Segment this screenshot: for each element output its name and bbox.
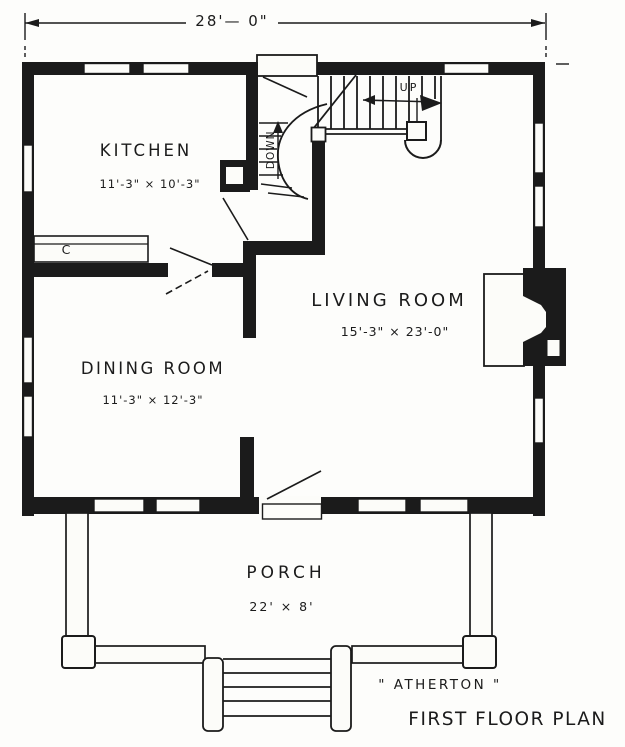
window-right-living-2: [535, 186, 544, 227]
porch: [62, 513, 496, 731]
kitchen-dining-door-swing-dashed: [166, 271, 208, 294]
window-left-dining-2: [24, 396, 33, 437]
living-room-label: LIVING ROOM: [299, 291, 479, 311]
fireplace-flue: [548, 340, 560, 356]
entry-vestibule: [257, 55, 317, 76]
window-bottom-dining-2: [156, 499, 200, 512]
up-arrowhead-small: [363, 95, 375, 105]
front-door-sill: [263, 504, 322, 519]
wall-divider-upper: [243, 241, 256, 338]
porch-side-right: [470, 513, 492, 640]
window-bottom-living-2: [420, 499, 468, 512]
plan-title: FIRST FLOOR PLAN: [390, 710, 625, 730]
newel-volute: [405, 140, 441, 158]
wall-stair-hall-bottom: [256, 241, 325, 255]
dining-room-label: DINING ROOM: [63, 360, 243, 378]
up-label: UP: [394, 82, 424, 94]
counter-label: C: [55, 243, 77, 257]
hall-kitchen-door-swing: [223, 198, 248, 240]
porch-post-left: [62, 636, 95, 668]
basement-newel-post: [312, 128, 326, 142]
front-door-swing: [267, 471, 321, 499]
kitchen-label: KITCHEN: [61, 142, 231, 160]
up-arrowhead-large: [420, 95, 442, 111]
window-top-kitchen-2: [143, 64, 189, 74]
interior-walls: [33, 62, 325, 497]
porch-label: PORCH: [196, 564, 376, 583]
wall-divider-lower: [240, 437, 254, 497]
floor-plan-drawing: 28'— 0" KITCHEN 11'-3" × 10'-3" LIVING R…: [0, 0, 625, 747]
newel-post: [407, 122, 426, 140]
wall-left: [22, 62, 34, 516]
fireplace: [484, 268, 566, 366]
porch-post-right: [463, 636, 496, 668]
fireplace-hearth: [484, 274, 524, 366]
dimension-arrowhead-right: [531, 19, 545, 27]
windows: [24, 64, 544, 513]
porch-side-left: [66, 513, 88, 640]
exterior-walls: [22, 62, 545, 516]
window-left-kitchen: [24, 145, 33, 192]
porch-rail-right: [352, 646, 463, 663]
house-name-title: " ATHERTON ": [350, 678, 530, 693]
dimension-arrowhead-left: [25, 19, 39, 27]
dining-room-dims-label: 11'-3" × 12'-3": [63, 394, 243, 407]
stair-break-line: [313, 75, 356, 129]
window-right-living-1: [535, 123, 544, 173]
step-stringer-left: [203, 658, 223, 731]
down-label: DOWN: [266, 130, 278, 170]
wall-stair-hall-right: [312, 131, 325, 255]
window-top-right: [444, 64, 489, 74]
window-bottom-dining-1: [94, 499, 144, 512]
porch-dims-label: 22' × 8': [192, 600, 372, 614]
overall-dimension-label: 28'— 0": [186, 13, 278, 30]
kitchen-dims-label: 11'-3" × 10'-3": [65, 178, 235, 191]
window-top-kitchen-1: [84, 64, 130, 74]
window-right-living-3: [535, 398, 544, 443]
step-stringer-right: [331, 646, 351, 731]
living-room-dims-label: 15'-3" × 23'-0": [302, 325, 488, 339]
entry-door-swing: [263, 77, 307, 97]
kitchen-dining-door-swing: [170, 248, 212, 265]
wall-kitchen-south: [33, 263, 168, 277]
kitchen-counter: [34, 236, 148, 262]
window-bottom-living-1: [358, 499, 406, 512]
window-left-dining-1: [24, 337, 33, 383]
counter-outline: [34, 236, 148, 262]
porch-rail-left: [95, 646, 205, 663]
wall-kitchen-south-stub: [212, 263, 245, 277]
